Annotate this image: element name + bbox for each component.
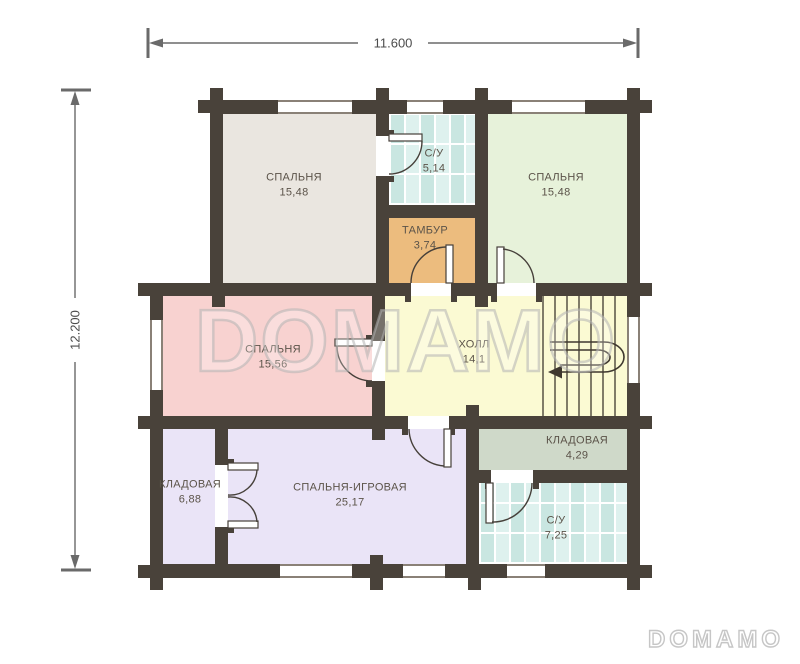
window <box>512 100 585 114</box>
window <box>403 564 445 578</box>
wall-segment <box>150 283 640 296</box>
wall-segment <box>150 416 640 429</box>
log-end <box>212 296 225 307</box>
log-end <box>370 578 383 590</box>
log-end <box>372 429 385 440</box>
dimension-height-label: 12.200 <box>68 304 83 356</box>
room-bedroom-top-left <box>223 114 376 283</box>
window <box>627 317 640 383</box>
room-hall <box>385 296 627 416</box>
log-end <box>475 88 488 100</box>
brand-logo: DOMAMO <box>648 626 784 654</box>
window <box>280 564 352 578</box>
room-storage-right <box>479 429 627 470</box>
log-end <box>210 88 223 100</box>
room-bedroom-playroom <box>228 429 466 564</box>
dimension-width-label: 11.600 <box>368 36 419 51</box>
wall-segment <box>376 100 389 296</box>
wall-segment <box>475 100 488 296</box>
window <box>507 564 545 578</box>
room-bathroom-top <box>389 114 475 205</box>
floor-plan: СПАЛЬНЯ 15,48 С/У 5,14 СПАЛЬНЯ 15,48 ТАМ… <box>0 0 800 664</box>
room-tambour <box>389 218 475 283</box>
log-end <box>376 88 389 100</box>
log-end <box>640 100 652 113</box>
log-end <box>475 296 488 307</box>
log-end <box>468 578 481 590</box>
wall-segment <box>372 296 385 416</box>
window <box>407 100 443 114</box>
log-end <box>640 283 652 296</box>
log-end <box>150 578 163 590</box>
log-end <box>640 565 652 578</box>
wall-segment <box>215 429 228 578</box>
window <box>278 100 352 114</box>
log-end <box>138 283 150 296</box>
log-end <box>138 416 150 429</box>
wall-segment <box>210 100 223 296</box>
log-end <box>466 405 479 416</box>
wall-segment <box>479 470 640 483</box>
log-end <box>198 100 210 113</box>
room-bedroom-top-right <box>488 114 627 283</box>
log-end <box>627 578 640 590</box>
window <box>150 320 163 390</box>
log-end <box>640 416 652 429</box>
wall-segment <box>466 429 479 578</box>
room-bathroom-bottom <box>479 483 627 564</box>
wall-segment <box>376 205 488 218</box>
log-end <box>627 88 640 100</box>
room-bedroom-middle <box>163 296 372 416</box>
room-storage-left <box>163 429 215 564</box>
log-end <box>138 565 150 578</box>
log-end <box>370 555 383 564</box>
